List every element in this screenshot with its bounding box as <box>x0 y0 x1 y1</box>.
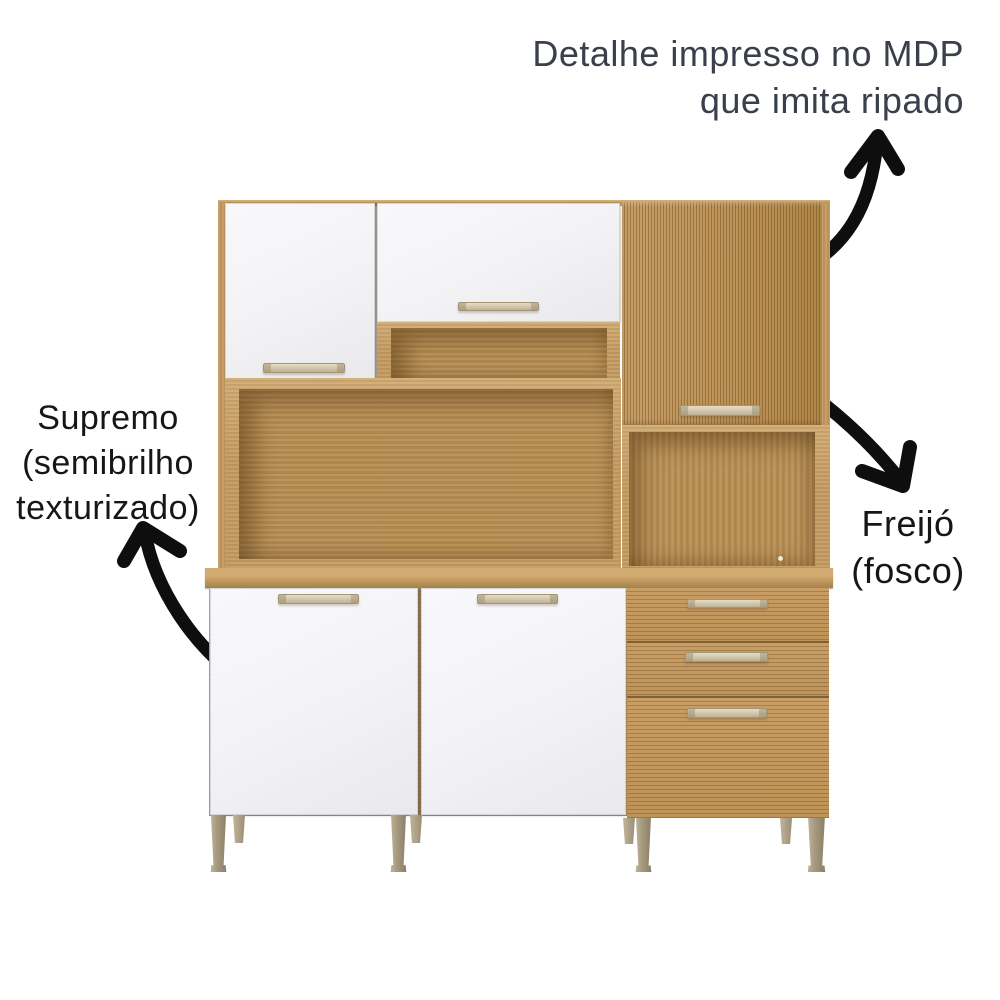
base-left-door-handle <box>278 594 359 604</box>
annotation-supremo-line1: Supremo <box>0 396 216 441</box>
leg-front-4 <box>807 818 826 872</box>
drawer-3-handle <box>687 708 767 718</box>
base-left-door <box>210 588 418 815</box>
right-niche-back <box>629 432 815 566</box>
drawer-1-handle <box>687 599 768 608</box>
leg-front-2 <box>390 815 407 872</box>
product-infographic: Detalhe impresso no MDP que imita ripado… <box>0 0 1000 1000</box>
annotation-supremo-line3: texturizado) <box>0 486 216 531</box>
drawer-3 <box>627 698 829 818</box>
ribbed-door <box>622 202 822 425</box>
upper-left-door-handle <box>263 363 345 373</box>
upper-middle-door <box>377 203 620 322</box>
drawer-unit <box>627 585 829 818</box>
leg-back-2 <box>410 815 422 843</box>
leg-back-3 <box>623 818 635 844</box>
ribbed-door-handle <box>680 405 760 416</box>
base-middle-door <box>421 588 626 815</box>
leg-front-1 <box>210 815 227 872</box>
kitchen-cabinet <box>205 200 835 878</box>
center-niche-back <box>239 389 613 559</box>
leg-back-4 <box>780 818 792 844</box>
leg-front-3 <box>635 818 652 872</box>
annotation-freijo-line2: (fosco) <box>828 547 988 594</box>
annotation-ripado: Detalhe impresso no MDP que imita ripado <box>532 30 964 124</box>
cam-fitting-dot <box>778 556 783 561</box>
annotation-supremo-line2: (semibrilho <box>0 441 216 486</box>
annotation-supremo: Supremo (semibrilho texturizado) <box>0 396 216 531</box>
annotation-freijo-line1: Freijó <box>828 500 988 547</box>
drawer-1 <box>627 588 829 643</box>
annotation-freijo: Freijó (fosco) <box>828 500 988 594</box>
center-niche <box>225 378 621 568</box>
annotation-ripado-line1: Detalhe impresso no MDP <box>532 30 964 77</box>
upper-left-door <box>225 203 375 379</box>
base-middle-door-handle <box>477 594 558 604</box>
upper-middle-niche-back <box>391 328 607 380</box>
upper-middle-door-handle <box>458 302 539 311</box>
leg-back-1 <box>233 815 245 843</box>
annotation-ripado-line2: que imita ripado <box>532 77 964 124</box>
right-niche <box>622 425 830 572</box>
drawer-2-handle <box>685 652 768 662</box>
drawer-2 <box>627 643 829 698</box>
